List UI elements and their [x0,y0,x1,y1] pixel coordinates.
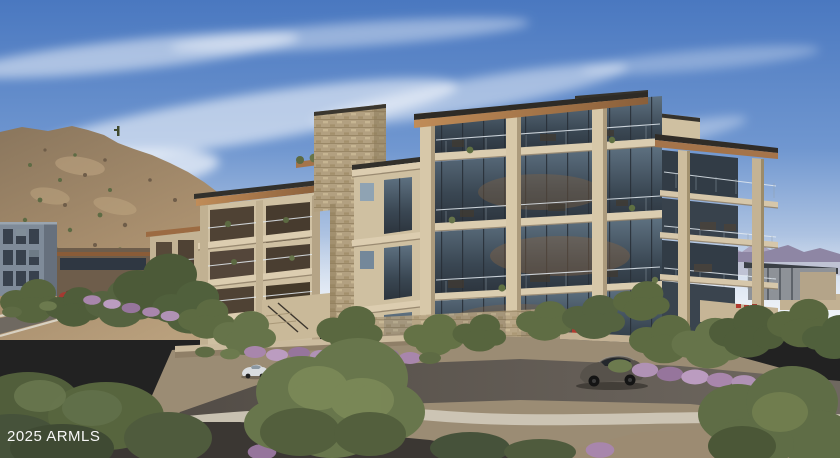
right-wing [655,134,778,335]
architectural-rendering: 2025 ARMLS [0,0,840,458]
listing-photo: 2025 ARMLS [0,0,840,458]
armls-watermark: 2025 ARMLS [7,428,100,445]
